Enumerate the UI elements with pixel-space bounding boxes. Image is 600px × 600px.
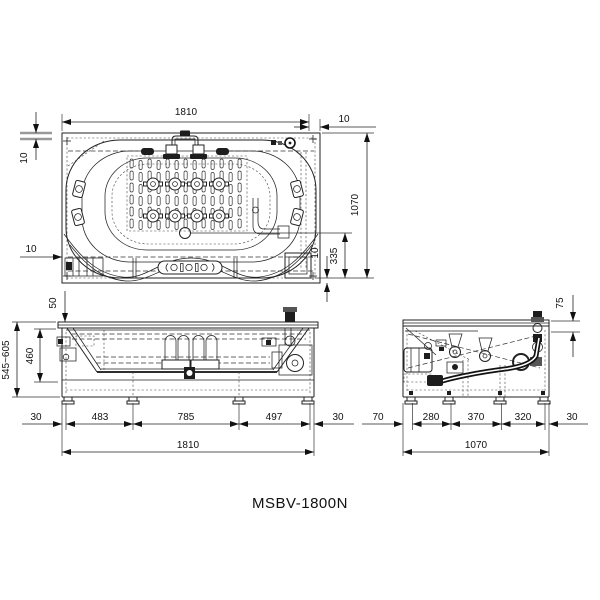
faucet-knob bbox=[216, 148, 229, 155]
dim-front-rim-drop: 50 bbox=[48, 297, 59, 309]
dim-front-overall-height: 545~605 bbox=[1, 340, 12, 380]
dim-side-right-margin: 30 bbox=[566, 412, 578, 423]
round-jet bbox=[166, 210, 185, 222]
dim-plan-width: 1810 bbox=[175, 107, 198, 118]
adjustable-foot bbox=[538, 397, 550, 404]
dim-side-seg-320: 320 bbox=[515, 412, 532, 423]
dim-plan-top-right-gap: 10 bbox=[338, 114, 350, 125]
dim-side-deck-gap: 75 bbox=[555, 297, 566, 309]
round-jet bbox=[144, 178, 163, 190]
wall-jet bbox=[72, 180, 86, 198]
wall-jet bbox=[71, 208, 85, 226]
model-title: MSBV-1800N bbox=[252, 495, 348, 512]
drain-outlet bbox=[180, 228, 191, 239]
round-jet bbox=[210, 178, 229, 190]
adjustable-foot bbox=[127, 397, 139, 404]
tub-left-slope bbox=[67, 328, 97, 372]
dim-front-seg-497: 497 bbox=[266, 412, 283, 423]
dim-front-left-margin: 30 bbox=[30, 412, 42, 423]
adjustable-foot bbox=[405, 397, 417, 404]
wall-jet bbox=[290, 208, 304, 226]
dim-front-total-width: 1810 bbox=[177, 440, 200, 451]
round-jet bbox=[144, 210, 163, 222]
adjustable-foot bbox=[443, 397, 455, 404]
dim-front-right-margin: 30 bbox=[332, 412, 344, 423]
adjustable-foot bbox=[494, 397, 506, 404]
tub-rim-contour bbox=[82, 151, 300, 262]
drain-trap bbox=[427, 375, 443, 386]
dim-plan-bottom-left-gap: 10 bbox=[25, 244, 37, 255]
pump-assembly-front bbox=[262, 307, 312, 375]
air-control bbox=[271, 138, 295, 148]
dim-side-seg-280: 280 bbox=[423, 412, 440, 423]
overflow-grille bbox=[158, 261, 222, 274]
dim-front-inner-depth: 460 bbox=[25, 347, 36, 364]
dim-plan-drain-offset: 335 bbox=[329, 247, 340, 264]
dim-plan-top-left-gap: 10 bbox=[19, 152, 30, 164]
dim-plan-height: 1070 bbox=[350, 193, 361, 216]
dim-side-seg-370: 370 bbox=[468, 412, 485, 423]
drawing-sheet: 1810 10 10 1070 335 10 10 bbox=[0, 0, 600, 600]
adjustable-foot bbox=[302, 397, 314, 404]
faucet-knob bbox=[141, 148, 154, 155]
dim-front-seg-785: 785 bbox=[178, 412, 195, 423]
valve-above-rim bbox=[285, 312, 295, 322]
side-view bbox=[403, 311, 550, 404]
round-jet bbox=[188, 210, 207, 222]
dim-plan-bottom-right-gap: 10 bbox=[310, 247, 321, 259]
wall-jet bbox=[290, 180, 304, 198]
front-view bbox=[57, 307, 318, 404]
adjustable-foot bbox=[62, 397, 74, 404]
dim-front-seg-483: 483 bbox=[92, 412, 109, 423]
plan-view bbox=[62, 131, 352, 284]
technical-drawing: 1810 10 10 1070 335 10 10 bbox=[0, 0, 600, 600]
adjustable-foot bbox=[233, 397, 245, 404]
faucet-assembly bbox=[141, 131, 229, 160]
whirlpool-jets bbox=[144, 178, 229, 222]
dim-side-left-margin: 70 bbox=[372, 412, 384, 423]
dim-side-total-width: 1070 bbox=[465, 440, 488, 451]
front-dimensions: 50 545~605 460 30 483 785 497 30 1810 bbox=[1, 291, 354, 456]
